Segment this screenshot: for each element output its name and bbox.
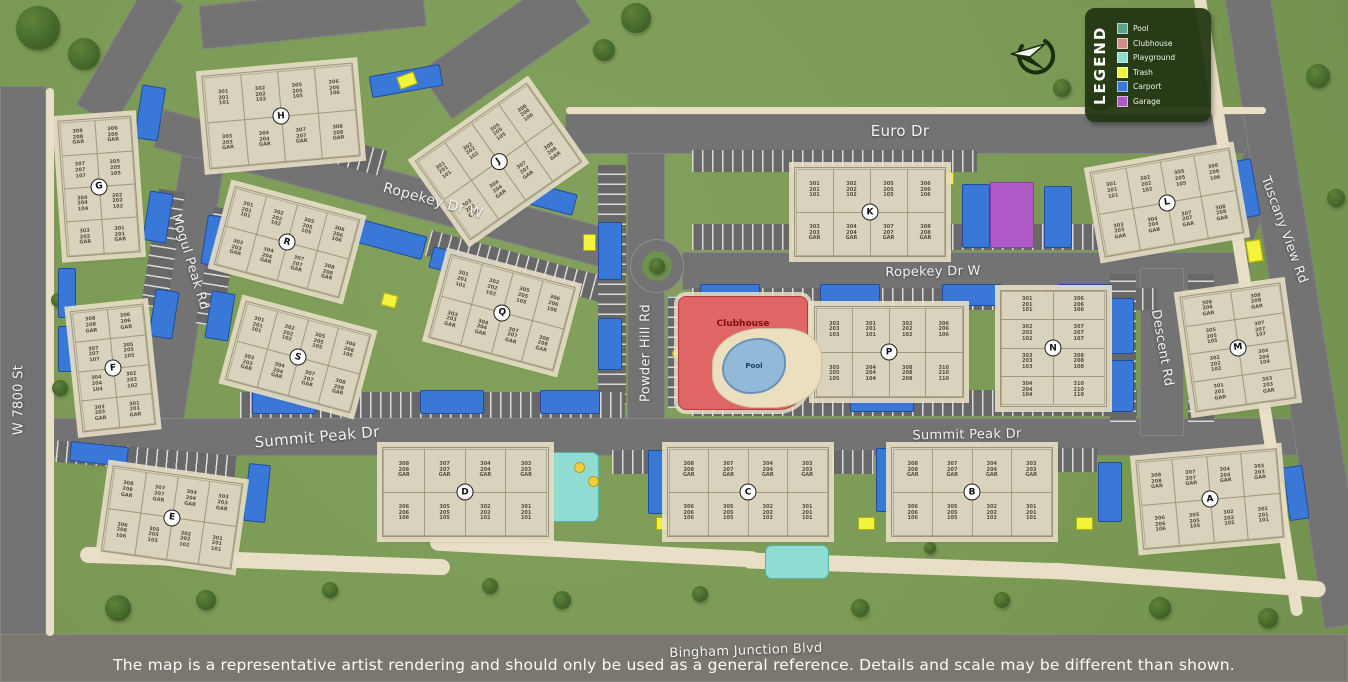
unit-stack: 301201101 [197,521,236,568]
street-label-powder-hill-rd: Powder Hill Rd [639,304,654,402]
tree [851,599,869,617]
carport [1108,360,1134,412]
pool-label: Pool [745,362,762,370]
unit-stack: 306206106 [313,64,355,113]
garage [990,182,1034,248]
unit-stack: 308208GAR [317,109,359,158]
unit-stack: 303203GAR [1240,450,1279,497]
unit-stack: 308208GAR [893,449,934,493]
street-label-summit-peak-dr: Summit Peak Dr [912,427,1021,444]
legend-label: Garage [1133,97,1160,106]
carport [962,184,990,248]
unit-stack: 308208GAR [59,119,97,156]
building-letter-badge-P: P [881,344,898,361]
legend-label: Clubhouse [1133,39,1172,48]
legend-swatch-playground [1117,52,1128,63]
building-letter-badge-K: K [862,204,879,221]
legend-label: Carport [1133,82,1161,91]
building-letter-badge-C: C [740,484,757,501]
tree [105,595,131,621]
unit-stack: 301201101 [1001,291,1054,320]
unit-stack: 301201GAR [101,216,139,253]
unit-stack: 306206106 [1053,291,1106,320]
unit-stack: 301201GAR [116,393,155,427]
trash-enclosure [858,517,875,530]
building-C: 308208GAR307207GAR304204GAR303203GAR3062… [667,447,829,537]
unit-stack: 308208GAR [907,212,945,256]
tree [649,258,665,274]
unit-stack: 301201101 [796,169,834,213]
pool-umbrella [588,476,599,487]
unit-stack: 306206GAR [94,117,132,154]
unit-stack: 303203GAR [203,480,242,527]
compass-north-icon [1005,28,1061,84]
legend-label: Pool [1133,24,1149,33]
playground [765,545,829,579]
legend-title: LEGEND [1089,14,1111,116]
unit-stack: 301201101 [1244,492,1283,539]
legend-item-playground: Playground [1117,52,1207,63]
unit-stack: 303203GAR [505,449,547,493]
unit-stack: 306206106 [1141,501,1180,548]
legend-item-pool: Pool [1117,23,1207,34]
unit-stack: 306206106 [383,492,425,536]
tree [1327,189,1345,207]
building-F: 308208GAR306206GAR3072071073052051053042… [70,303,156,432]
building-M: 306206GAR308208GAR3052051053072071073022… [1179,282,1296,412]
carport [1098,462,1122,522]
unit-stack: 310210110 [1053,376,1106,405]
street-label-ropekey-dr-w: Ropekey Dr W [885,264,981,281]
unit-stack: 304204104 [1001,376,1054,405]
unit-stack: 310210110 [925,352,963,397]
building-K: 3012011013022021023052051053062061063032… [794,167,946,257]
carport [598,318,622,370]
unit-stack: 303203GAR [207,119,249,168]
unit-stack: 301201101 [1011,492,1052,536]
building-P: 3032031033012011013022021023062061063052… [814,306,964,398]
building-letter-badge-D: D [457,484,474,501]
tree [1306,64,1330,88]
pool-umbrella [574,462,585,473]
unit-stack: 308208GAR [669,449,710,493]
building-H: 3012011013022021023052051053062061063032… [201,63,361,170]
walkway-left-curb [46,88,54,636]
unit-stack: 306206106 [669,492,710,536]
tree [692,586,708,602]
building-A: 308208GAR307207GAR304204GAR303203GAR3062… [1135,448,1284,550]
trash-enclosure [1076,517,1093,530]
tree [553,591,571,609]
trash-enclosure [583,234,596,251]
tree [994,592,1010,608]
building-E: 308208GAR307207GAR304204GAR303203GAR3062… [101,465,244,570]
unit-stack: 303203GAR [81,397,120,431]
tree [52,380,68,396]
unit-stack: 308208GAR [1137,459,1176,506]
tree [1258,608,1278,628]
legend-item-carport: Carport [1117,81,1207,92]
unit-stack: 301201101 [203,74,245,123]
unit-stack: 303203103 [816,308,854,353]
disclaimer-text: The map is a representative artist rende… [0,656,1348,674]
legend-items: PoolClubhousePlaygroundTrashCarportGarag… [1111,14,1207,116]
unit-stack: 306206106 [925,308,963,353]
legend-label: Trash [1133,68,1153,77]
carport [598,222,622,280]
unit-stack: 308208GAR [383,449,425,493]
carport [1044,186,1072,248]
unit-stack: 303203GAR [787,449,828,493]
tree [924,542,936,554]
legend-item-garage: Garage [1117,96,1207,107]
legend-item-clubhouse: Clubhouse [1117,38,1207,49]
tree [1149,597,1171,619]
carport [540,390,600,414]
unit-stack: 306206106 [907,169,945,213]
legend-swatch-trash [1117,67,1128,78]
unit-stack: 303203GAR [1011,449,1052,493]
legend-panel: LEGEND PoolClubhousePlaygroundTrashCarpo… [1085,8,1211,122]
tree [68,38,100,70]
unit-stack: 301201101 [505,492,547,536]
tree [16,6,60,50]
unit-stack: 308208GAR [1200,189,1242,237]
carport [820,284,880,306]
unit-stack: 301201101 [787,492,828,536]
tree [593,39,615,61]
legend-swatch-carport [1117,81,1128,92]
unit-stack: 303203GAR [796,212,834,256]
unit-stack: 301201GAR [1193,374,1247,410]
building-B: 308208GAR307207GAR304204GAR303203GAR3062… [891,447,1053,537]
playground [542,452,599,522]
building-N: 3012011013062061063022021023072071073032… [1000,290,1107,407]
tree [621,3,651,33]
unit-stack: 306206106 [893,492,934,536]
unit-stack: 306206106 [1193,149,1235,197]
street-label-w-7800-st: W 7800 St [12,365,27,435]
legend-swatch-garage [1117,96,1128,107]
carport [1108,298,1134,354]
apartment-site-map: Clubhouse Pool LEGEND PoolClubhousePlayg… [0,0,1348,682]
legend-item-trash: Trash [1117,67,1207,78]
carport [942,284,1002,306]
trash-enclosure [1245,239,1263,263]
street-label-euro-dr: Euro Dr [871,122,930,140]
building-letter-badge-B: B [964,484,981,501]
tree [482,578,498,594]
building-D: 308208GAR307207GAR304204GAR303203GAR3062… [382,447,549,537]
carport [420,390,484,414]
building-letter-badge-N: N [1045,340,1062,357]
tree [196,590,216,610]
unit-stack: 303203GAR [1241,368,1295,404]
legend-label: Playground [1133,53,1175,62]
building-G: 308208GAR306206GAR3072071073052051053042… [57,115,140,257]
unit-stack: 303203GAR [66,219,104,256]
tree [322,582,338,598]
legend-swatch-clubhouse [1117,38,1128,49]
legend-swatch-pool [1117,23,1128,34]
